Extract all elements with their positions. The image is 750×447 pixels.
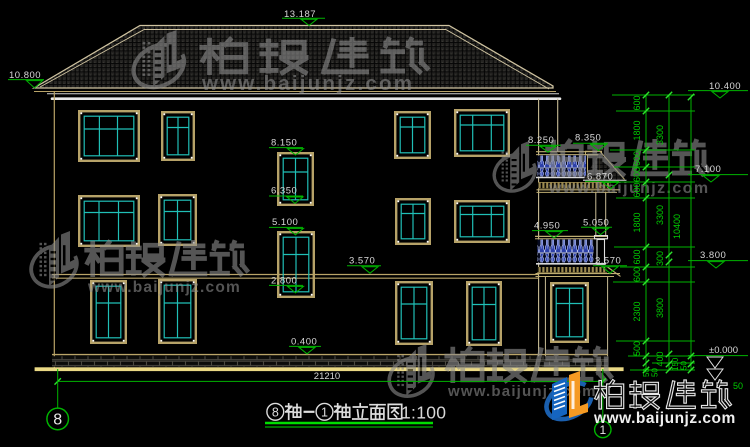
svg-text:www.baijunjz.com: www.baijunjz.com — [87, 279, 241, 296]
svg-text:3.570: 3.570 — [595, 256, 621, 267]
svg-text:50: 50 — [651, 368, 660, 377]
svg-text:0.400: 0.400 — [291, 337, 317, 348]
svg-text:3300: 3300 — [655, 205, 665, 225]
svg-text:400: 400 — [655, 351, 665, 366]
svg-text:6.350: 6.350 — [271, 186, 297, 197]
svg-text:50: 50 — [680, 361, 689, 370]
svg-text:1: 1 — [321, 405, 328, 419]
svg-text:8: 8 — [53, 412, 62, 429]
svg-text:±0.000: ±0.000 — [709, 345, 738, 356]
svg-text:10400: 10400 — [672, 214, 682, 239]
svg-text:600: 600 — [632, 167, 642, 182]
svg-text:2300: 2300 — [632, 301, 642, 321]
svg-text:1800: 1800 — [632, 120, 642, 140]
svg-text:3.800: 3.800 — [700, 250, 726, 261]
svg-text:600: 600 — [632, 267, 642, 282]
svg-text:21210: 21210 — [314, 371, 340, 382]
svg-text:8: 8 — [272, 405, 279, 419]
svg-text:1800: 1800 — [632, 212, 642, 232]
svg-text:600: 600 — [632, 95, 642, 110]
svg-text:8.250: 8.250 — [528, 135, 554, 146]
svg-text:300: 300 — [655, 251, 665, 266]
svg-text:7.100: 7.100 — [695, 164, 721, 175]
svg-text:www.baijunjz.com: www.baijunjz.com — [201, 72, 414, 95]
svg-text:5.100: 5.100 — [272, 217, 298, 228]
svg-text:www.baijunjz.com: www.baijunjz.com — [548, 180, 710, 197]
svg-text:50: 50 — [733, 381, 743, 391]
svg-text:500: 500 — [632, 341, 642, 356]
svg-text:www.baijunjz.com: www.baijunjz.com — [593, 410, 736, 427]
svg-text:8.150: 8.150 — [271, 138, 297, 149]
svg-text:600: 600 — [632, 249, 642, 264]
svg-text:600: 600 — [632, 182, 642, 197]
svg-text:2.800: 2.800 — [271, 276, 297, 287]
svg-text:4.950: 4.950 — [534, 221, 560, 232]
svg-text:6.870: 6.870 — [587, 172, 613, 183]
svg-text:8.350: 8.350 — [575, 133, 601, 144]
svg-text:3800: 3800 — [655, 298, 665, 318]
svg-text:600: 600 — [632, 151, 642, 166]
svg-text:3300: 3300 — [655, 125, 665, 145]
svg-text:3.570: 3.570 — [349, 256, 375, 267]
svg-text:1:100: 1:100 — [401, 403, 446, 423]
